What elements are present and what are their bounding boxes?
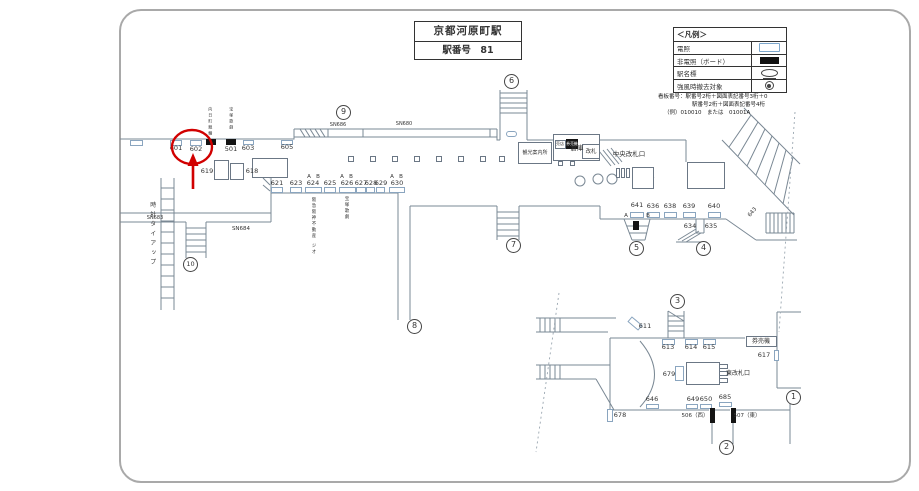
lit-board-symbol xyxy=(759,43,780,52)
circled-number: 8 xyxy=(407,319,422,334)
diagram-label: 改札 xyxy=(586,148,597,154)
diagram-label: 507（東） xyxy=(734,412,761,418)
ad-board-lit xyxy=(290,187,302,193)
ad-board-unlit xyxy=(633,221,639,230)
diagram-label: 619 xyxy=(201,168,213,175)
structure-box xyxy=(719,364,728,369)
circled-number: 9 xyxy=(336,105,351,120)
diagram-label: 626 xyxy=(341,180,353,187)
diagram-label: 614 xyxy=(685,344,697,351)
diagram-label: 630 xyxy=(391,180,403,187)
structure-box xyxy=(458,156,464,162)
diagram-label: 603 xyxy=(242,145,254,152)
diagram-label: 643 xyxy=(747,206,758,218)
legend-label: 駅名標 xyxy=(674,68,751,78)
diagram-label: 623 xyxy=(290,180,302,187)
diagram-label: 中央改札口 xyxy=(613,151,646,158)
diagram-label: 641 xyxy=(631,202,643,209)
diagram-label: 602 xyxy=(190,146,202,153)
ad-board-lit xyxy=(719,402,732,407)
diagram-label: 613 xyxy=(662,344,674,351)
wind-removal-symbol xyxy=(765,81,774,90)
diagram-label: 638 xyxy=(664,203,676,210)
diagram-label: 611 xyxy=(639,323,651,330)
ad-board-unlit xyxy=(710,408,715,423)
diagram-label: B xyxy=(316,173,320,179)
station-title-box: 京都河原町駅 駅番号 81 xyxy=(414,21,522,60)
circled-number: 4 xyxy=(696,241,711,256)
ad-board-lit xyxy=(339,187,356,193)
numbering-note-line3: （例）010010 または 01001A xyxy=(664,108,750,116)
legend-label: 電照 xyxy=(674,43,751,53)
legend-row-wind: 強風時撤去対象 xyxy=(674,79,786,92)
diagram-label: 東改札口 xyxy=(726,370,750,376)
ad-board-lit xyxy=(630,212,644,218)
diagram-label: SN680 xyxy=(396,122,412,127)
legend: ＜凡例＞ 電照 非電照（ボード） 駅名標 強風時撤去対象 xyxy=(673,27,787,93)
legend-label: 非電照（ボード） xyxy=(674,56,751,66)
legend-row-unlit: 非電照（ボード） xyxy=(674,54,786,67)
diagram-label: A xyxy=(390,173,394,179)
legend-symbol-cell xyxy=(751,67,786,79)
numbering-note-line2: 駅番号2桁＋図面表記番号4桁 xyxy=(692,100,765,108)
ad-board-lit xyxy=(366,187,375,193)
diagram-label: 売店 xyxy=(556,142,564,146)
diagram-label: 617 xyxy=(758,352,770,359)
diagram-label: 阪急阪神不動産 xyxy=(311,197,316,239)
ad-board-lit xyxy=(130,140,143,146)
legend-row-sign: 駅名標 xyxy=(674,66,786,79)
station-number: 駅番号 81 xyxy=(415,42,521,59)
ad-board-lit xyxy=(389,187,405,193)
station-name: 京都河原町駅 xyxy=(415,22,521,42)
ad-board-lit xyxy=(305,187,322,193)
structure-box xyxy=(414,156,420,162)
diagram-label: 615 xyxy=(703,344,715,351)
circled-number: 10 xyxy=(183,257,198,272)
diagram-label: 券売機 xyxy=(752,338,770,344)
diagram-label: 501 xyxy=(225,146,237,153)
diagram-label: 向日町競輪 xyxy=(208,107,212,137)
structure-box xyxy=(558,161,563,166)
diagram-label: 678 xyxy=(614,412,626,419)
structure-box xyxy=(499,156,505,162)
ad-board-lit xyxy=(646,404,659,409)
structure-box xyxy=(214,160,229,180)
diagram-label: 601 xyxy=(170,145,182,152)
diagram-label: 650 xyxy=(700,396,712,403)
diagram-label: SN684 xyxy=(232,225,250,231)
circled-number: 6 xyxy=(504,74,519,89)
station-sign-symbol xyxy=(761,69,778,77)
structure-box xyxy=(480,156,486,162)
diagram-label: 685 xyxy=(719,394,731,401)
legend-symbol-cell xyxy=(751,80,786,92)
unlit-board-symbol xyxy=(760,57,779,64)
ad-board-unlit xyxy=(206,139,216,145)
diagram-label: 649 xyxy=(687,396,699,403)
structure-box xyxy=(230,163,244,180)
structure-box xyxy=(719,378,728,383)
diagram-label: 618 xyxy=(246,168,258,175)
ad-board-unlit xyxy=(226,139,236,145)
circled-number: 3 xyxy=(670,294,685,309)
diagram-label: 605 xyxy=(281,144,293,151)
structure-box xyxy=(621,168,625,178)
ad-board-lit xyxy=(376,187,385,193)
diagram-label: A xyxy=(624,212,628,218)
structure-box xyxy=(626,168,630,178)
stairs-box xyxy=(632,167,654,189)
ad-board-lit xyxy=(271,187,283,193)
legend-label: 強風時撤去対象 xyxy=(674,81,751,91)
structure-box xyxy=(392,156,398,162)
arrows-box xyxy=(687,162,725,189)
diagram-label: 宝塚歌劇 xyxy=(229,107,233,131)
ad-board-lit xyxy=(683,212,696,218)
diagram-label: 621 xyxy=(271,180,283,187)
structure-box xyxy=(570,161,575,166)
structure-box xyxy=(616,168,620,178)
ad-board-lit xyxy=(708,212,721,218)
east-gate-box xyxy=(686,362,720,385)
structure-box xyxy=(348,156,354,162)
diagram-label: 636 xyxy=(647,203,659,210)
circled-number: 5 xyxy=(629,241,644,256)
diagram-label: A xyxy=(307,173,311,179)
diagram-label: 625 xyxy=(324,180,336,187)
diagram-label: B xyxy=(646,212,650,218)
legend-row-lit: 電照 xyxy=(674,41,786,54)
diagram-label: B xyxy=(399,173,403,179)
diagram-label: 624 xyxy=(307,180,319,187)
diagram-label: 635 xyxy=(705,223,717,230)
diagram-label: 634 xyxy=(684,223,696,230)
circled-number: 2 xyxy=(719,440,734,455)
diagram-label: 640 xyxy=(708,203,720,210)
ad-board-lit xyxy=(607,409,613,422)
ad-board-lit xyxy=(356,187,366,193)
diagram-label: 券売機 xyxy=(566,142,577,146)
station-diagram-page: 601602501603605619618SN683SN684SN686SN68… xyxy=(0,0,919,491)
diagram-label: 宝塚歌劇 xyxy=(344,196,349,220)
ad-board-lit xyxy=(664,212,677,218)
legend-symbol-cell xyxy=(751,55,786,67)
diagram-label: 629 xyxy=(375,180,387,187)
diagram-label: SN686 xyxy=(330,123,346,128)
circled-number: 1 xyxy=(786,390,801,405)
diagram-label: B xyxy=(349,173,353,179)
diagram-label: A xyxy=(340,173,344,179)
ad-board-lit xyxy=(774,350,779,361)
ad-board-lit xyxy=(506,131,517,137)
circled-number: 7 xyxy=(506,238,521,253)
structure-box xyxy=(436,156,442,162)
numbering-note-line1: 看板番号：駅番号2桁＋図面表記番号3桁＋0 xyxy=(658,92,768,100)
diagram-label: 646 xyxy=(646,396,658,403)
ad-board-lit xyxy=(675,366,684,381)
diagram-label: 639 xyxy=(683,203,695,210)
diagram-label: ジオ xyxy=(311,243,316,255)
legend-symbol-cell xyxy=(751,42,786,54)
structure-box xyxy=(370,156,376,162)
legend-header: ＜凡例＞ xyxy=(674,28,786,41)
diagram-label: 時計タイアップ xyxy=(150,202,156,269)
ad-board-lit xyxy=(686,404,698,409)
ad-board-lit xyxy=(324,187,336,193)
diagram-label: 観光案内所 xyxy=(523,151,548,156)
diagram-label: 506（西） xyxy=(682,412,709,418)
diagram-label: 679 xyxy=(663,371,675,378)
